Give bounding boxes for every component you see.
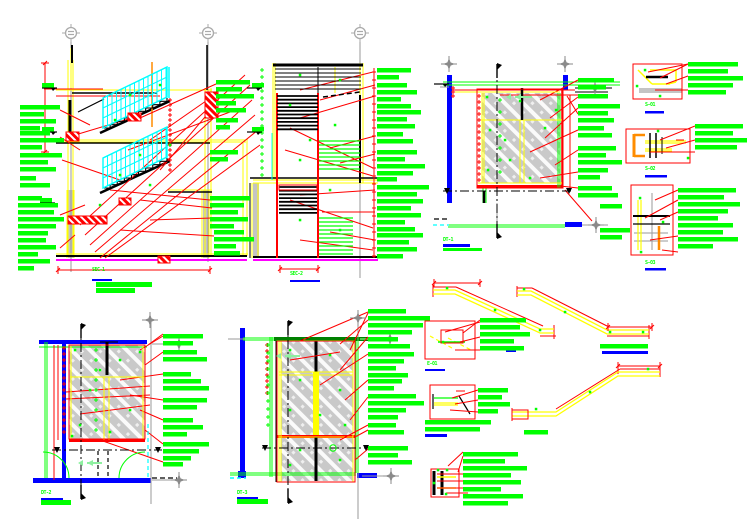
- title-detail-s01: S-01: [645, 103, 655, 108]
- title-detail-s02: S-02: [645, 167, 655, 172]
- title-detail-d: DT-2: [41, 491, 51, 496]
- title-detail-s03: S-03: [645, 261, 655, 266]
- door-swing-arcs: [43, 452, 145, 478]
- title-detail-e01: E-01: [427, 362, 437, 367]
- cad-canvas: [0, 0, 751, 519]
- title-detail-e: DT-3: [237, 491, 247, 496]
- grid-bubbles: [62, 24, 369, 42]
- title-section-b: SEC-2: [290, 272, 303, 277]
- title-detail-c: DT-1: [443, 238, 453, 243]
- cad-sheet: SEC-1 SEC-2 DT-1 DT-2 DT-3 S-01 S-02 S-0…: [0, 0, 751, 519]
- title-detail-e02: E-02: [425, 428, 435, 433]
- title-section-a: SEC-1: [92, 268, 105, 273]
